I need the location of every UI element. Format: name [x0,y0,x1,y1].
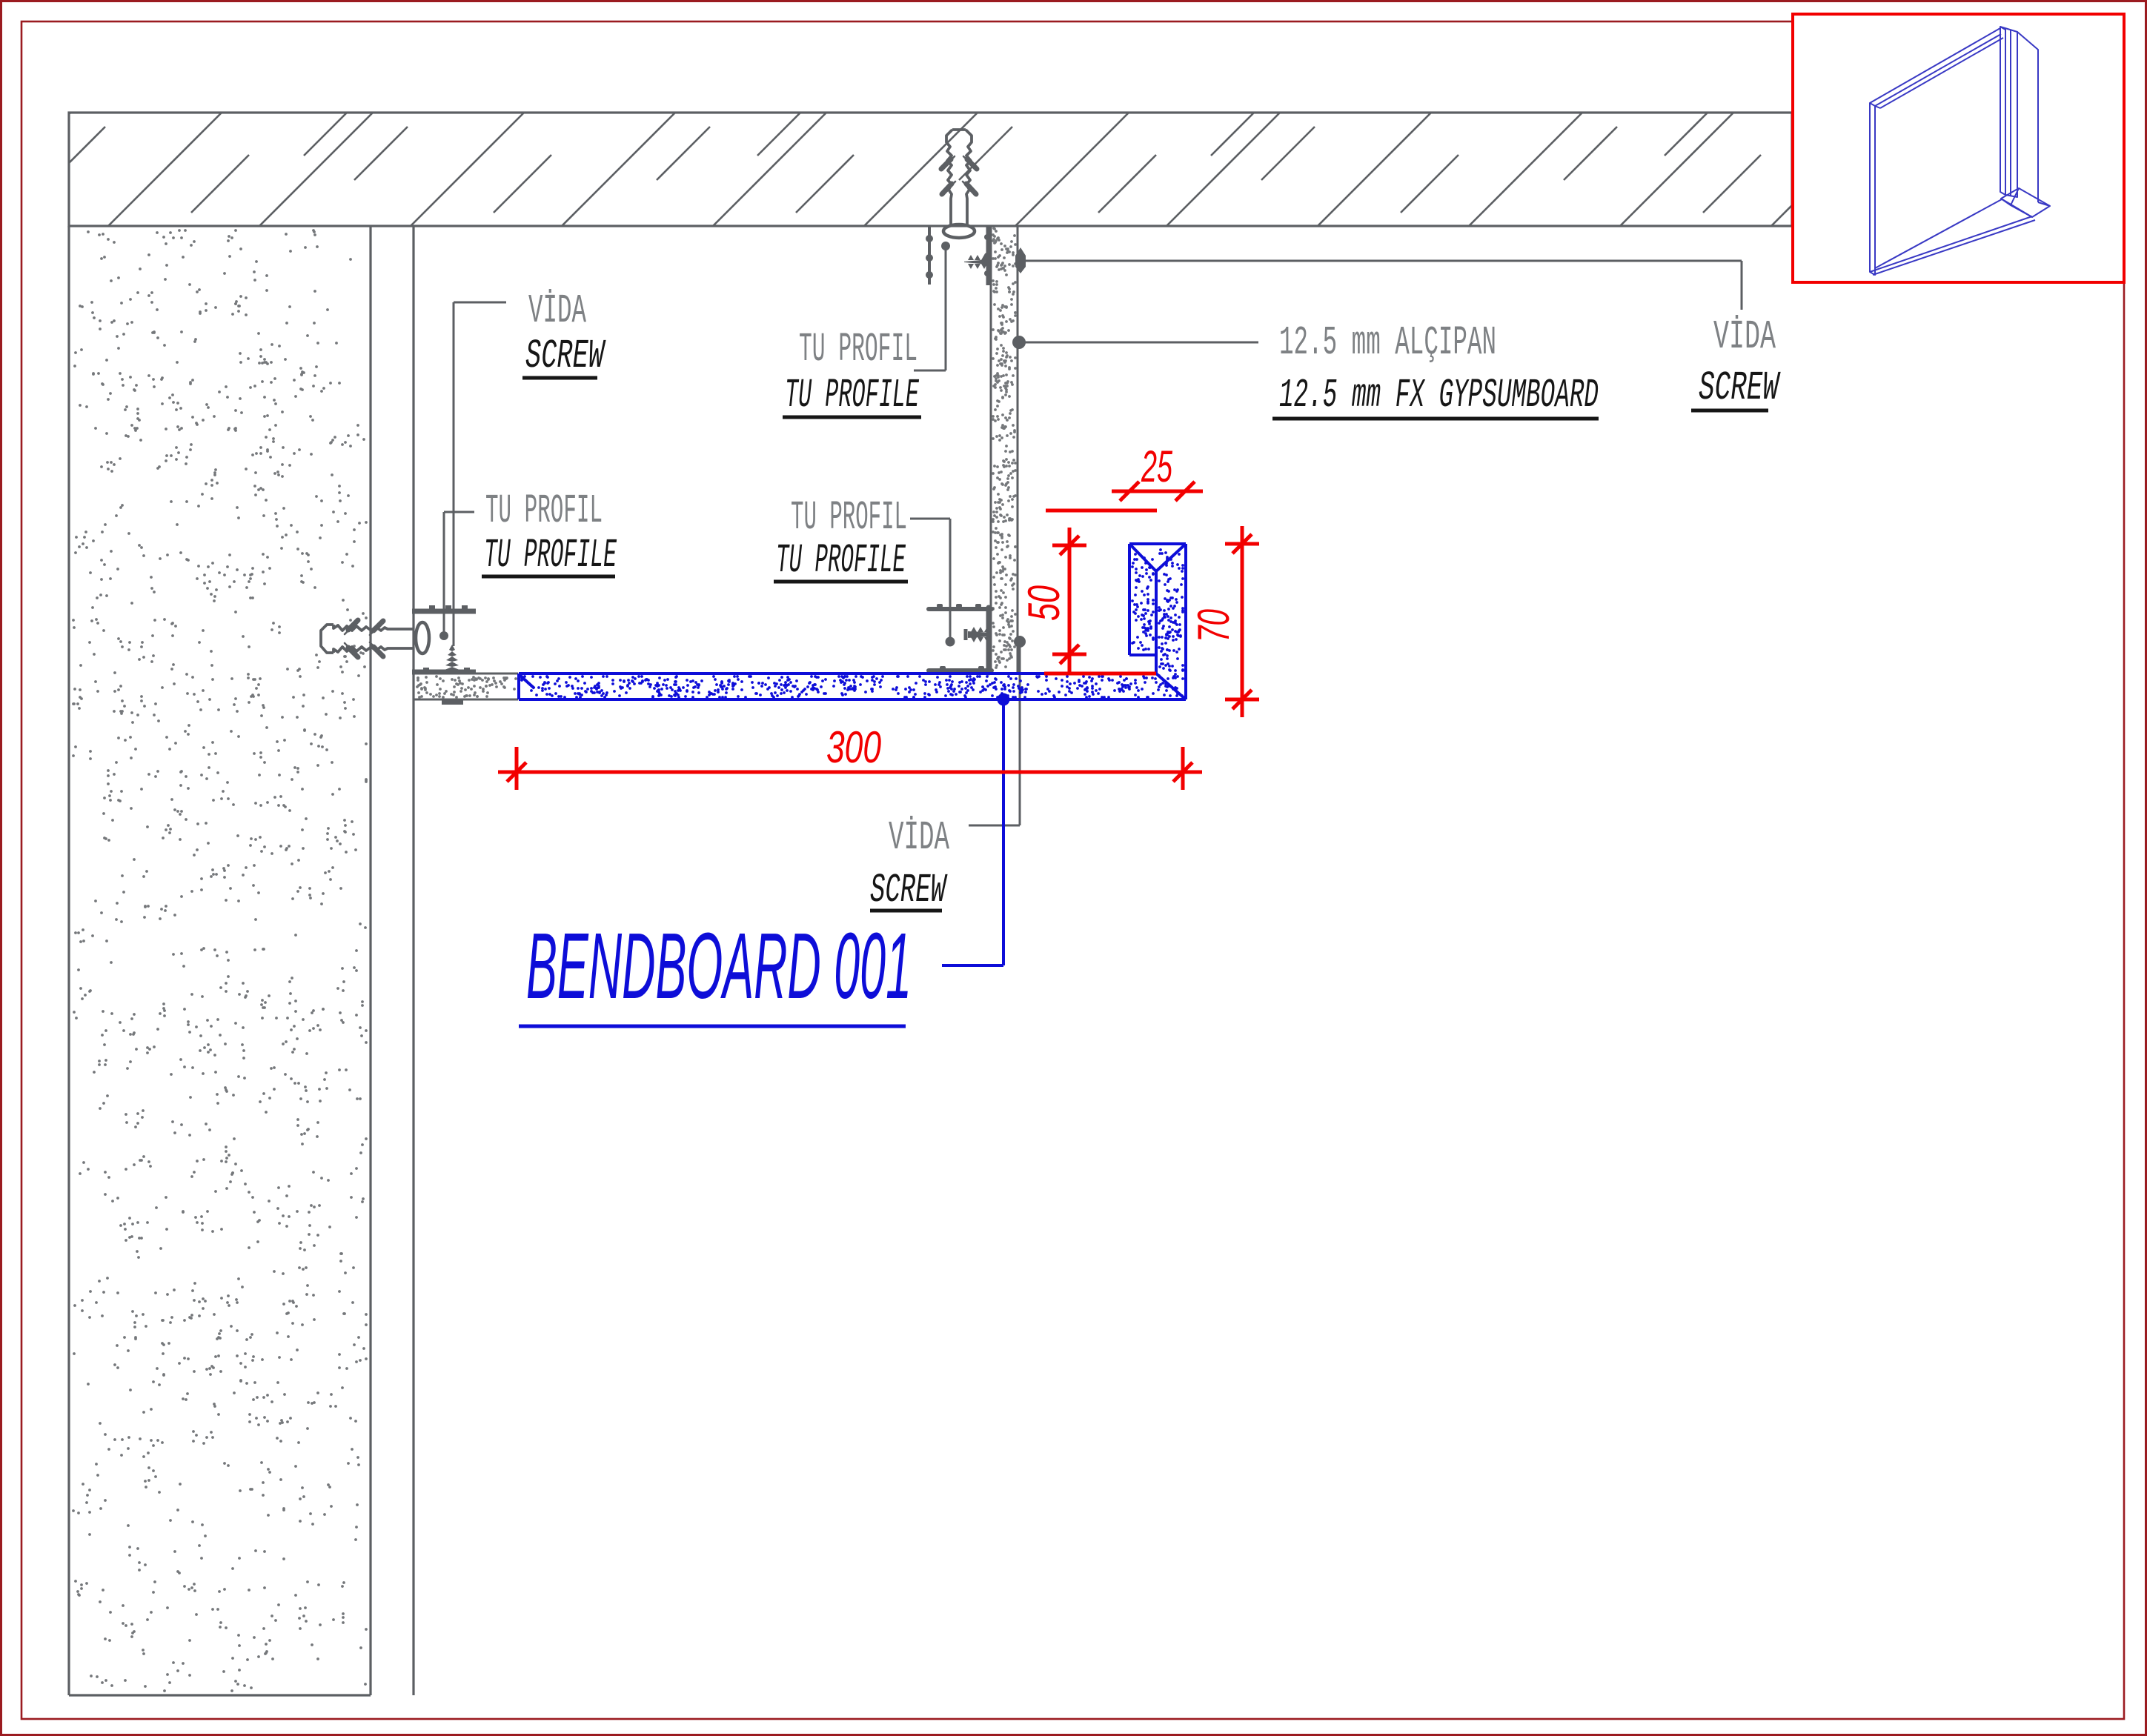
svg-text:TU PROFIL: TU PROFIL [485,488,603,534]
svg-text:SCREW: SCREW [870,867,948,914]
svg-text:TU PROFIL: TU PROFIL [799,326,917,373]
svg-text:12.5 mm ALÇIPAN: 12.5 mm ALÇIPAN [1279,319,1496,366]
svg-text:25: 25 [1141,442,1172,491]
svg-text:TU PROFILE: TU PROFILE [785,372,920,419]
svg-text:300: 300 [826,722,881,772]
svg-text:SCREW: SCREW [1699,365,1781,411]
svg-text:12.5 mm FX GYPSUMBOARD: 12.5 mm FX GYPSUMBOARD [1279,372,1599,419]
svg-text:50: 50 [1019,585,1069,621]
svg-text:VİDA: VİDA [528,287,586,334]
svg-text:SCREW: SCREW [525,333,606,379]
svg-text:70: 70 [1189,609,1238,642]
svg-text:TU PROFIL: TU PROFIL [791,494,907,541]
svg-text:VİDA: VİDA [1713,313,1776,360]
svg-text:TU PROFILE: TU PROFILE [776,537,906,584]
svg-text:VİDA: VİDA [889,814,949,861]
svg-text:TU PROFILE: TU PROFILE [484,532,617,579]
svg-text:BENDBOARD 001: BENDBOARD 001 [526,914,912,1018]
